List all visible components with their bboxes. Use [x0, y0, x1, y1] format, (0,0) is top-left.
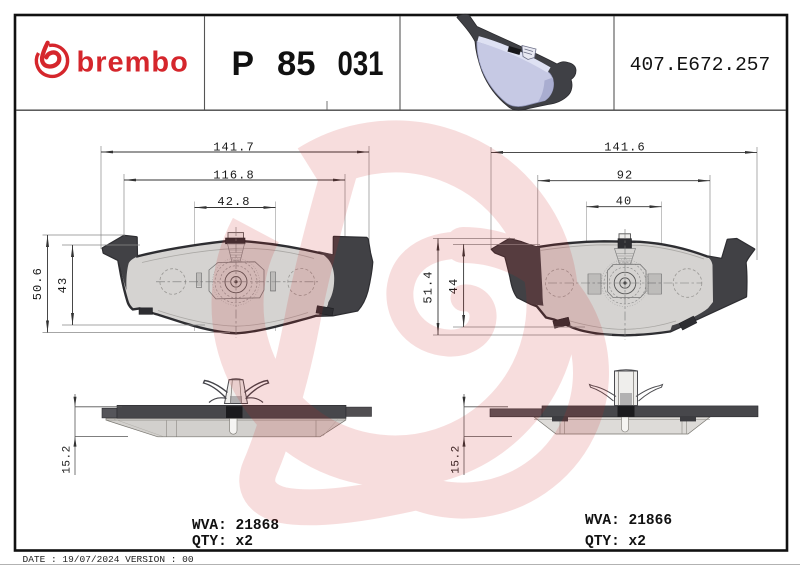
svg-text:031: 031: [338, 45, 384, 83]
svg-text:P: P: [232, 45, 255, 83]
svg-text:QTY: x2: QTY: x2: [585, 534, 646, 550]
svg-text:50.6: 50.6: [31, 267, 45, 300]
svg-text:WVA: 21866: WVA: 21866: [585, 513, 672, 529]
svg-text:141.7: 141.7: [213, 141, 255, 155]
svg-text:141.6: 141.6: [604, 141, 646, 155]
svg-text:WVA: 21868: WVA: 21868: [192, 518, 279, 534]
svg-text:DATE : 19/07/2024 VERSION : 00: DATE : 19/07/2024 VERSION : 00: [23, 554, 194, 565]
svg-text:407.E672.257: 407.E672.257: [630, 54, 770, 76]
svg-text:15.2: 15.2: [62, 445, 74, 473]
svg-text:92: 92: [617, 169, 634, 183]
svg-text:116.8: 116.8: [213, 169, 255, 183]
svg-text:brembo: brembo: [77, 47, 189, 79]
svg-text:42.8: 42.8: [217, 195, 250, 209]
svg-text:40: 40: [616, 195, 633, 209]
svg-text:85: 85: [277, 45, 316, 83]
svg-text:51.4: 51.4: [422, 270, 436, 303]
svg-text:QTY: x2: QTY: x2: [192, 534, 253, 550]
svg-text:43: 43: [56, 277, 70, 294]
